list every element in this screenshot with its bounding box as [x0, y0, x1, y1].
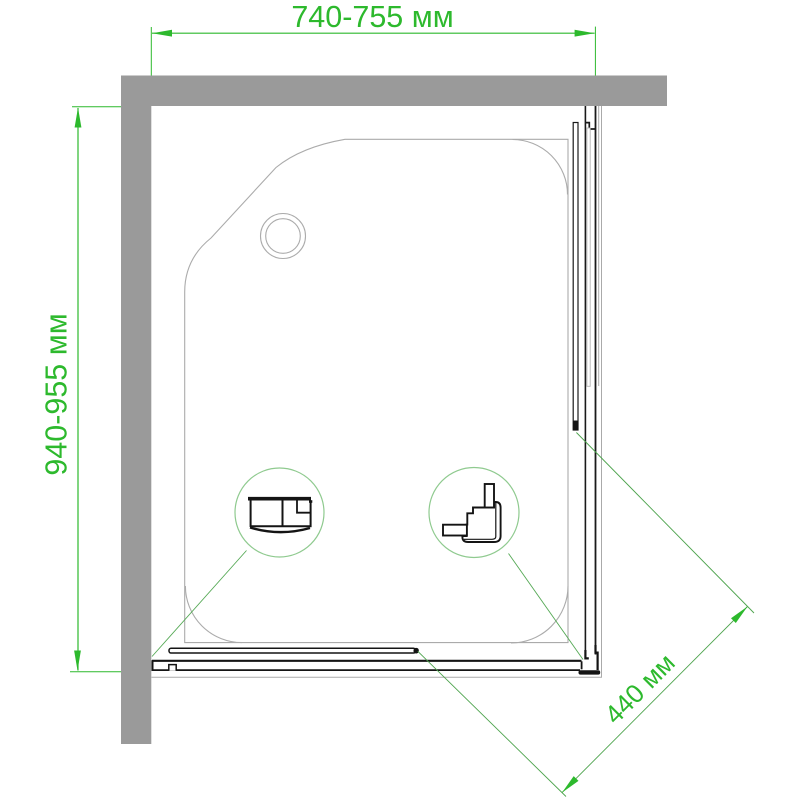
svg-text:940-955 мм: 940-955 мм [40, 313, 74, 475]
svg-text:740-755 мм: 740-755 мм [291, 0, 453, 34]
